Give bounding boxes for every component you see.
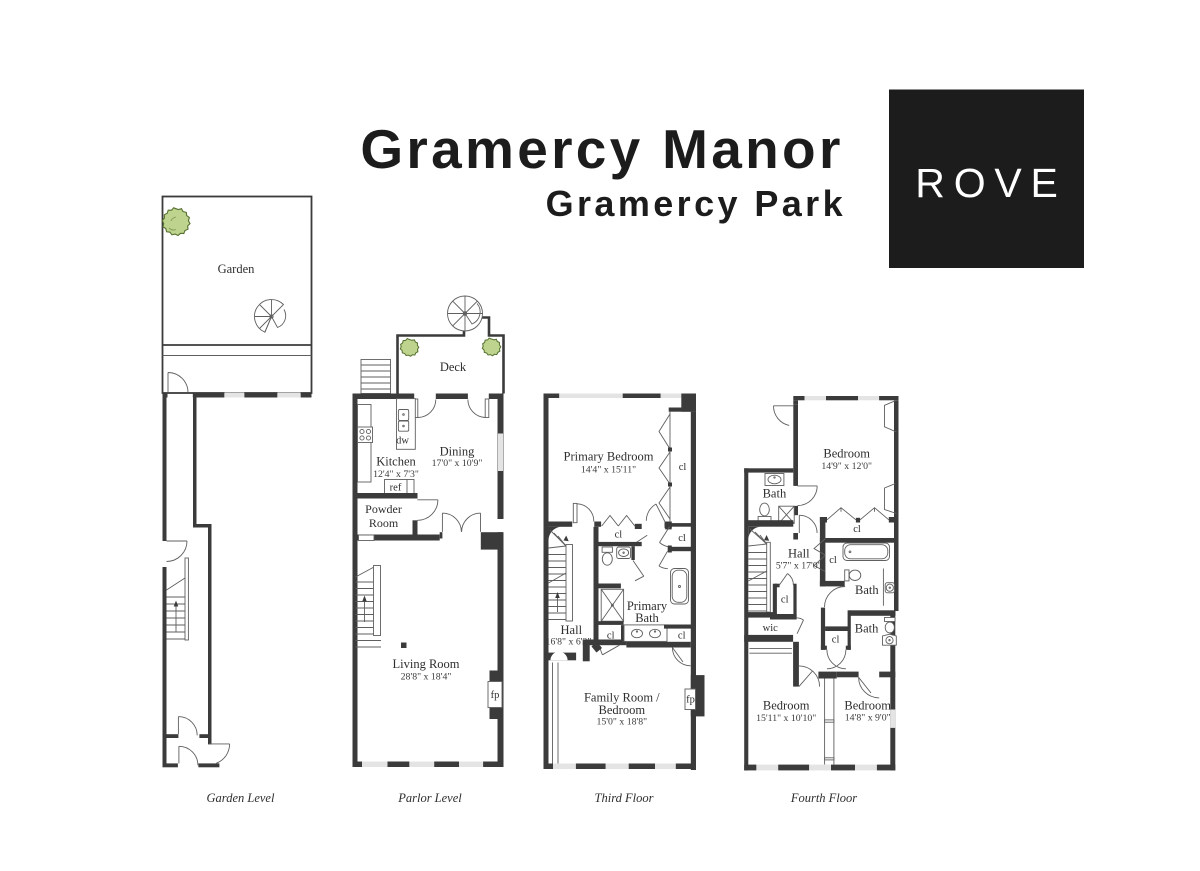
svg-text:cl: cl — [678, 533, 686, 544]
svg-text:Gramercy Manor: Gramercy Manor — [360, 118, 843, 180]
svg-text:fp: fp — [491, 690, 500, 701]
svg-text:Living Room: Living Room — [392, 657, 459, 671]
svg-text:cl: cl — [829, 555, 837, 566]
svg-text:Hall: Hall — [561, 623, 583, 637]
svg-text:cl: cl — [832, 635, 840, 646]
svg-text:Deck: Deck — [440, 360, 467, 374]
svg-text:Bath: Bath — [763, 487, 787, 501]
svg-text:Room: Room — [369, 516, 399, 530]
svg-text:14'4" x 15'11": 14'4" x 15'11" — [581, 465, 636, 476]
svg-text:Bedroom: Bedroom — [823, 447, 870, 461]
svg-text:cl: cl — [853, 524, 861, 535]
svg-text:16'8" x 6'2": 16'8" x 6'2" — [546, 637, 592, 648]
svg-text:Bath: Bath — [635, 611, 659, 625]
svg-text:fp: fp — [686, 695, 695, 706]
svg-text:cl: cl — [615, 530, 623, 541]
svg-text:28'8" x 18'4": 28'8" x 18'4" — [401, 672, 452, 683]
svg-text:Primary Bedroom: Primary Bedroom — [564, 450, 654, 464]
svg-text:5'7" x 17'0": 5'7" x 17'0" — [776, 561, 822, 572]
svg-text:Bedroom: Bedroom — [844, 699, 891, 713]
svg-text:12'4" x 7'3": 12'4" x 7'3" — [373, 469, 419, 480]
svg-text:cl: cl — [679, 462, 687, 473]
svg-text:14'8" x 9'0": 14'8" x 9'0" — [845, 713, 891, 724]
svg-text:Third Floor: Third Floor — [595, 791, 654, 805]
svg-text:Gramercy Park: Gramercy Park — [546, 183, 846, 224]
svg-text:dw: dw — [396, 436, 409, 447]
svg-text:Bath: Bath — [855, 622, 879, 636]
svg-text:14'9" x 12'0": 14'9" x 12'0" — [821, 461, 872, 472]
svg-text:Parlor Level: Parlor Level — [397, 791, 462, 805]
svg-text:cl: cl — [781, 595, 789, 606]
svg-text:17'0" x 10'9": 17'0" x 10'9" — [432, 458, 483, 469]
svg-text:Dining: Dining — [440, 445, 475, 459]
svg-text:wic: wic — [763, 623, 779, 634]
svg-text:Powder: Powder — [365, 502, 402, 516]
svg-text:ROVE: ROVE — [915, 160, 1066, 206]
svg-text:Bedroom: Bedroom — [763, 699, 810, 713]
svg-text:15'0" x 18'8": 15'0" x 18'8" — [596, 717, 647, 728]
svg-text:cl: cl — [678, 630, 686, 641]
svg-text:Bath: Bath — [855, 583, 879, 597]
svg-text:ref: ref — [390, 483, 402, 494]
svg-text:Fourth Floor: Fourth Floor — [790, 791, 857, 805]
svg-text:Kitchen: Kitchen — [376, 455, 416, 469]
svg-text:Hall: Hall — [788, 547, 810, 561]
svg-text:Garden Level: Garden Level — [207, 791, 275, 805]
svg-text:15'11" x 10'10": 15'11" x 10'10" — [756, 713, 816, 724]
svg-text:Bedroom: Bedroom — [599, 703, 646, 717]
svg-text:Garden: Garden — [218, 262, 256, 276]
